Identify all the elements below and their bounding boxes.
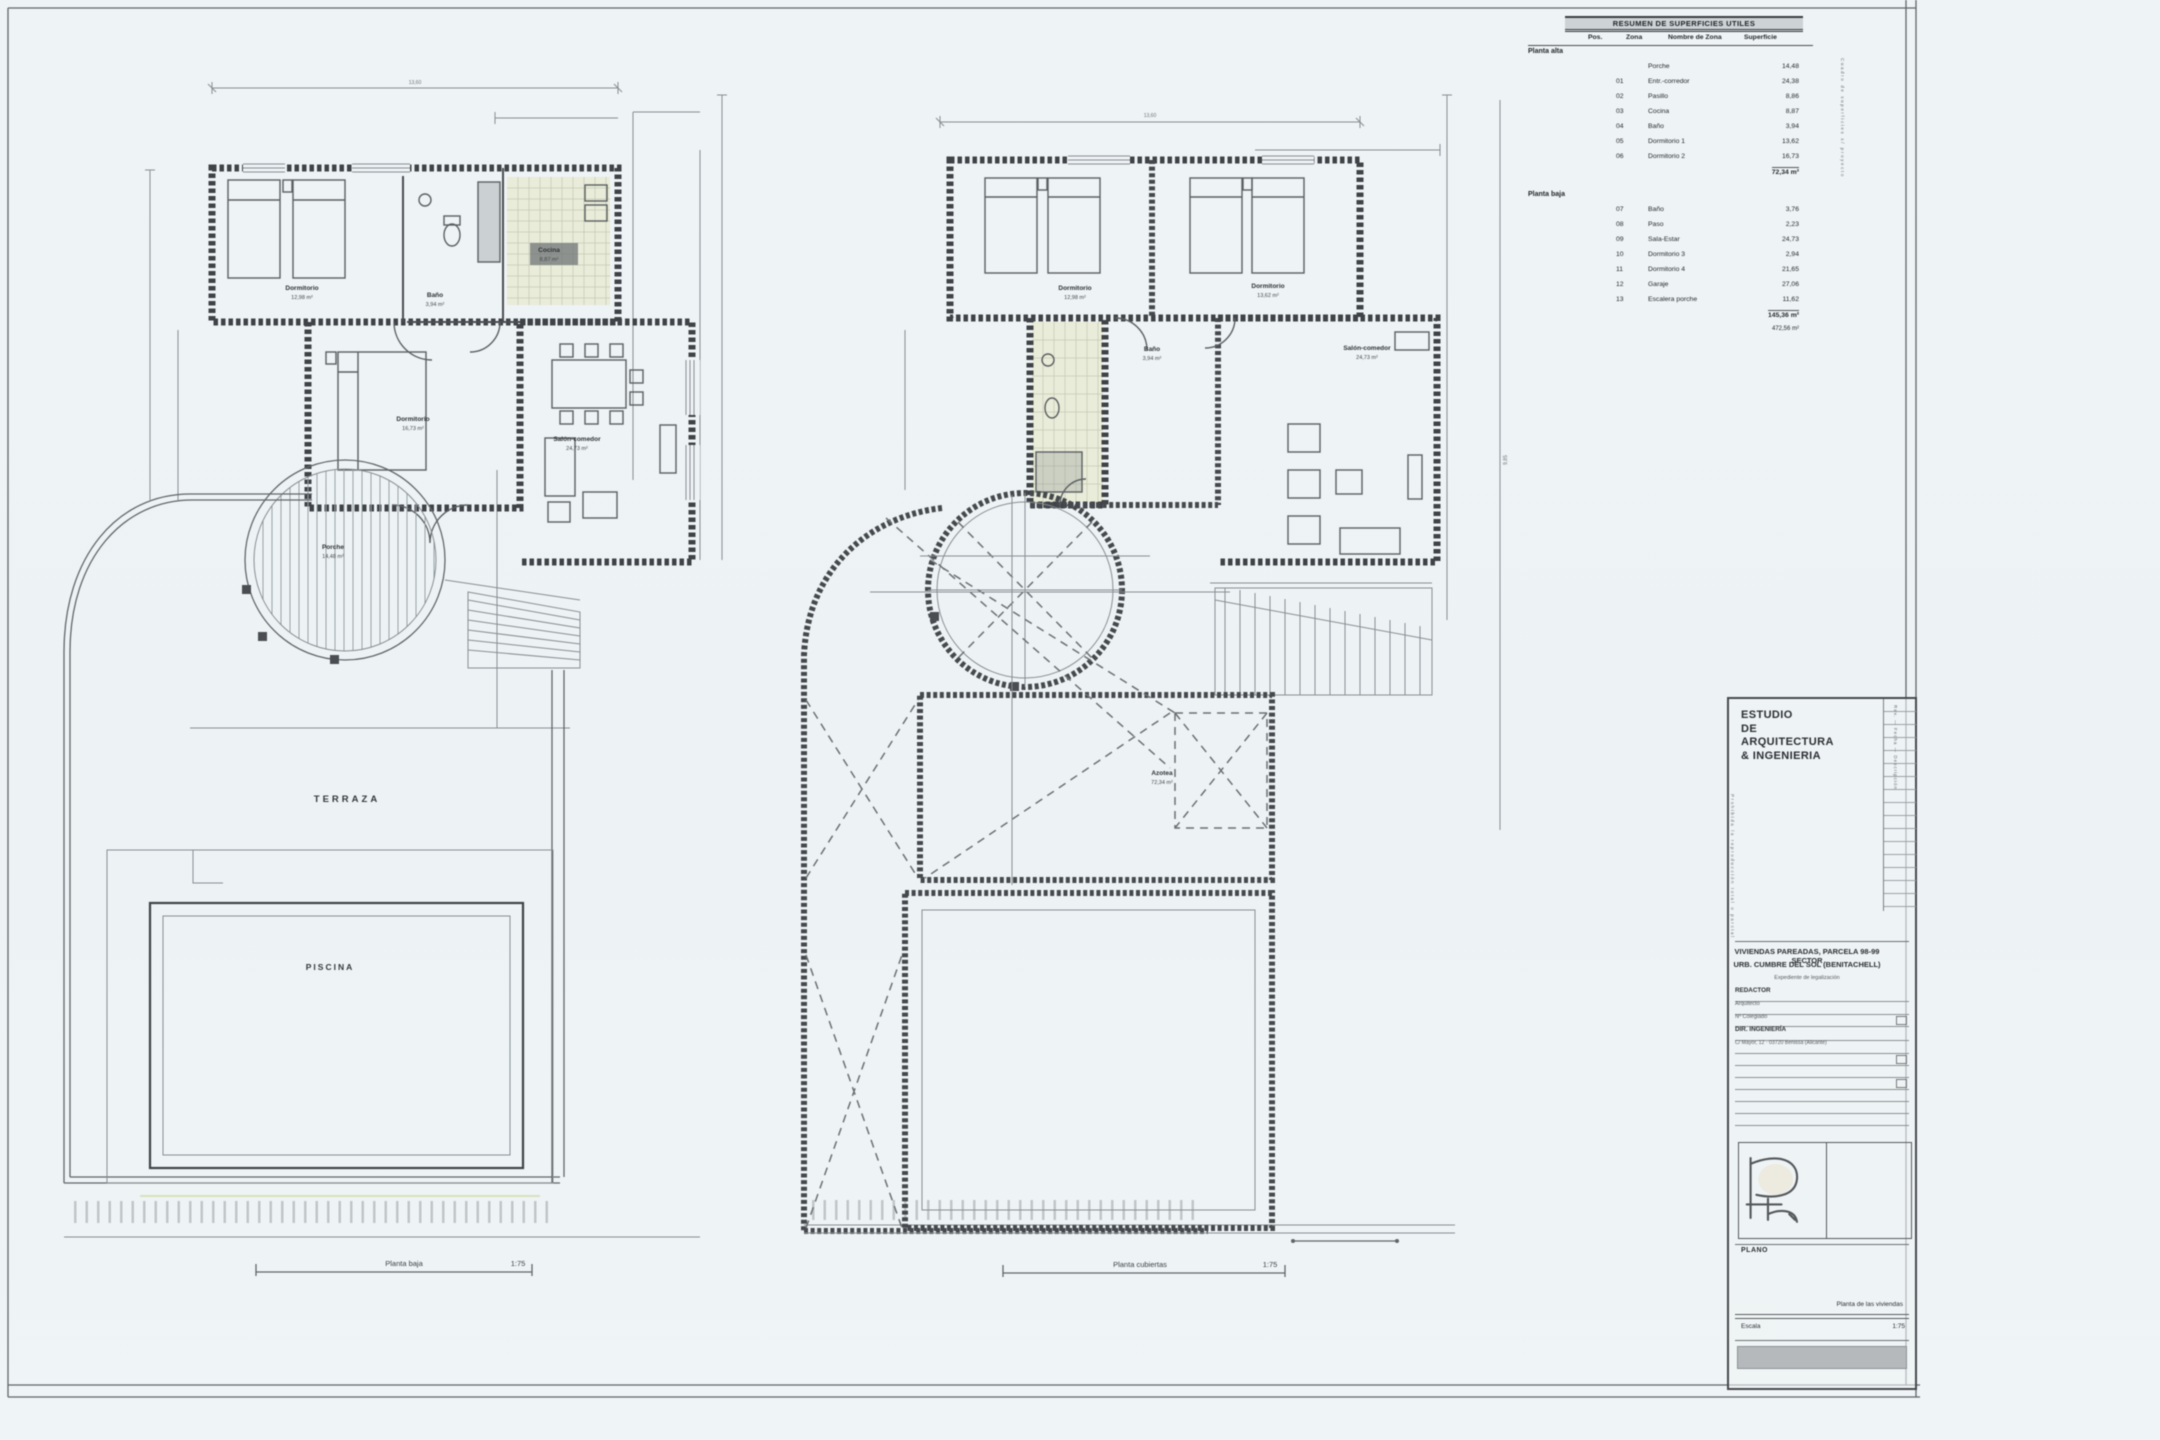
right-dim-side-value: 9,85 xyxy=(1503,455,1509,465)
left-terrace-boundary xyxy=(64,494,700,1237)
left-dim-top-value: 13,60 xyxy=(409,80,422,86)
table-row: Porche14,48 xyxy=(1528,61,1813,76)
table-row: 10Dormitorio 32,94 xyxy=(1528,249,1813,264)
room-area: 13,62 m² xyxy=(1257,293,1279,299)
room-area: 24,73 m² xyxy=(1356,355,1378,361)
plano-label: PLANO xyxy=(1741,1247,1768,1254)
right-scalebar: Planta cubiertas 1:75 xyxy=(1003,1239,1399,1277)
left-bath-fixtures xyxy=(419,182,500,262)
logo-sketch-icon xyxy=(1739,1143,1824,1235)
room-label: Dormitorio xyxy=(396,416,429,423)
table-row: 13Escalera porche11,62 xyxy=(1528,294,1813,309)
subtotal-row: 72,34 m² xyxy=(1528,166,1813,181)
title-block: ESTUDIO DE ARQUITECTURA & INGENIERIA Rev… xyxy=(1727,697,1917,1390)
room-label: Salón-comedor xyxy=(553,436,601,443)
left-pool xyxy=(107,850,553,1183)
table-row: 05Dormitorio 113,62 xyxy=(1528,136,1813,151)
table-side-note: Cuadro de superficies s/ proyecto xyxy=(1840,58,1845,330)
right-dim-top-value: 13,60 xyxy=(1144,113,1157,119)
right-living-furniture xyxy=(1288,332,1429,554)
direccion-label: DIR. INGENIERÍA xyxy=(1735,1026,1786,1033)
kitchen-floor xyxy=(507,177,610,305)
title-block-footer-bar xyxy=(1737,1346,1907,1369)
revision-strip: Rev. — Fecha — Descripción xyxy=(1883,699,1916,911)
left-beds xyxy=(228,180,345,278)
room-label: Salón-comedor xyxy=(1343,345,1391,352)
areas-table: RESUMEN DE SUPERFICIES UTILES Pos. Zona … xyxy=(1528,16,1813,339)
table-row: 04Baño3,94 xyxy=(1528,121,1813,136)
room-area: 12,98 m² xyxy=(1064,295,1086,301)
left-plan: 13,60 xyxy=(64,80,727,1276)
col-superficie: Superficie xyxy=(1744,34,1777,41)
project-title-3: Expediente de legalización xyxy=(1733,975,1881,981)
redactor-value: Arquitecto xyxy=(1735,1001,1760,1007)
left-plan-walls xyxy=(212,168,692,562)
room-label: Dormitorio xyxy=(1251,283,1284,290)
right-scale: 1:75 xyxy=(1263,1260,1278,1269)
total-row-2: 472,56 m² xyxy=(1528,324,1813,339)
col-pos: Pos. xyxy=(1588,34,1602,41)
right-plan-dimensions xyxy=(905,95,1500,830)
room-area: 16,73 m² xyxy=(402,426,424,432)
left-lower-bedroom xyxy=(326,352,426,470)
room-label: Dormitorio xyxy=(1058,285,1091,292)
table-row: 02Pasillo8,86 xyxy=(1528,91,1813,106)
left-scale: 1:75 xyxy=(511,1259,526,1268)
room-label: Cocina xyxy=(538,247,560,254)
drawing-name: Planta de las viviendas xyxy=(1837,1301,1904,1308)
studio-logo xyxy=(1738,1142,1912,1239)
colegiado-label: Nº Colegiado xyxy=(1735,1014,1767,1020)
room-label: Baño xyxy=(427,292,443,299)
room-area: 14,48 m² xyxy=(322,554,344,560)
scale-row: Escala 1:75 xyxy=(1741,1323,1905,1330)
areas-table-title: RESUMEN DE SUPERFICIES UTILES xyxy=(1565,16,1803,32)
section-label: Planta alta xyxy=(1528,48,1563,55)
areas-table-header: Pos. Zona Nombre de Zona Superficie xyxy=(1528,32,1813,46)
room-area: 3,94 m² xyxy=(1143,356,1162,362)
drawing-sheet: .w{stroke:#3f4347;stroke-width:7;fill:no… xyxy=(0,0,2160,1440)
table-row: 06Dormitorio 216,73 xyxy=(1528,151,1813,166)
left-scalebar: Planta baja 1:75 xyxy=(256,1259,532,1276)
left-living-furniture xyxy=(545,344,676,522)
revision-note: Rev. — Fecha — Descripción xyxy=(1893,705,1898,790)
room-area: 8,87 m² xyxy=(540,257,559,263)
left-plan-windows xyxy=(243,160,700,500)
table-row: 09Sala-Estar24,73 xyxy=(1528,234,1813,249)
left-caption: Planta baja xyxy=(385,1259,423,1268)
table-row: 12Garaje27,06 xyxy=(1528,279,1813,294)
table-row: 11Dormitorio 421,65 xyxy=(1528,264,1813,279)
room-label: Azotea xyxy=(1151,770,1173,777)
room-label: Dormitorio xyxy=(285,285,318,292)
room-area: 72,34 m² xyxy=(1151,780,1173,786)
room-area: 24,73 m² xyxy=(566,446,588,452)
left-stairs xyxy=(445,580,580,668)
project-title-2: URB. CUMBRE DEL SOL (BENITACHELL) xyxy=(1733,960,1881,969)
table-row: 08Paso2,23 xyxy=(1528,219,1813,234)
room-area: 3,94 m² xyxy=(426,302,445,308)
left-porch xyxy=(242,460,445,664)
section-label: Planta baja xyxy=(1528,191,1565,198)
redactor-label: REDACTOR xyxy=(1735,987,1771,994)
right-plan: 13,60 9,85 xyxy=(804,95,1509,1277)
right-stairs xyxy=(1210,583,1432,695)
room-label: Porche xyxy=(322,544,344,551)
room-label: Baño xyxy=(1144,346,1160,353)
escala-value: 1:75 xyxy=(1892,1323,1905,1330)
table-row: 01Entr.-corredor24,38 xyxy=(1528,76,1813,91)
studio-name: ESTUDIO DE ARQUITECTURA & INGENIERIA xyxy=(1741,709,1834,763)
total-row: 145,36 m² xyxy=(1528,309,1813,324)
terraza-label: TERRAZA xyxy=(314,794,380,805)
table-row: 07Baño3,76 xyxy=(1528,204,1813,219)
table-row: 03Cocina8,87 xyxy=(1528,106,1813,121)
piscina-label: PISCINA xyxy=(306,962,354,972)
right-beds xyxy=(985,178,1304,273)
escala-label: Escala xyxy=(1741,1323,1761,1330)
col-zona: Zona xyxy=(1626,34,1642,41)
col-nombre: Nombre de Zona xyxy=(1668,34,1722,41)
room-area: 12,98 m² xyxy=(291,295,313,301)
direccion-value: C/ Mayor, 12 · 03720 Benissa (Alicante) xyxy=(1735,1040,1827,1046)
scanned-sheet: .w{stroke:#3f4347;stroke-width:7;fill:no… xyxy=(0,0,2160,1440)
right-site xyxy=(804,495,1455,1233)
right-caption: Planta cubiertas xyxy=(1113,1260,1167,1269)
